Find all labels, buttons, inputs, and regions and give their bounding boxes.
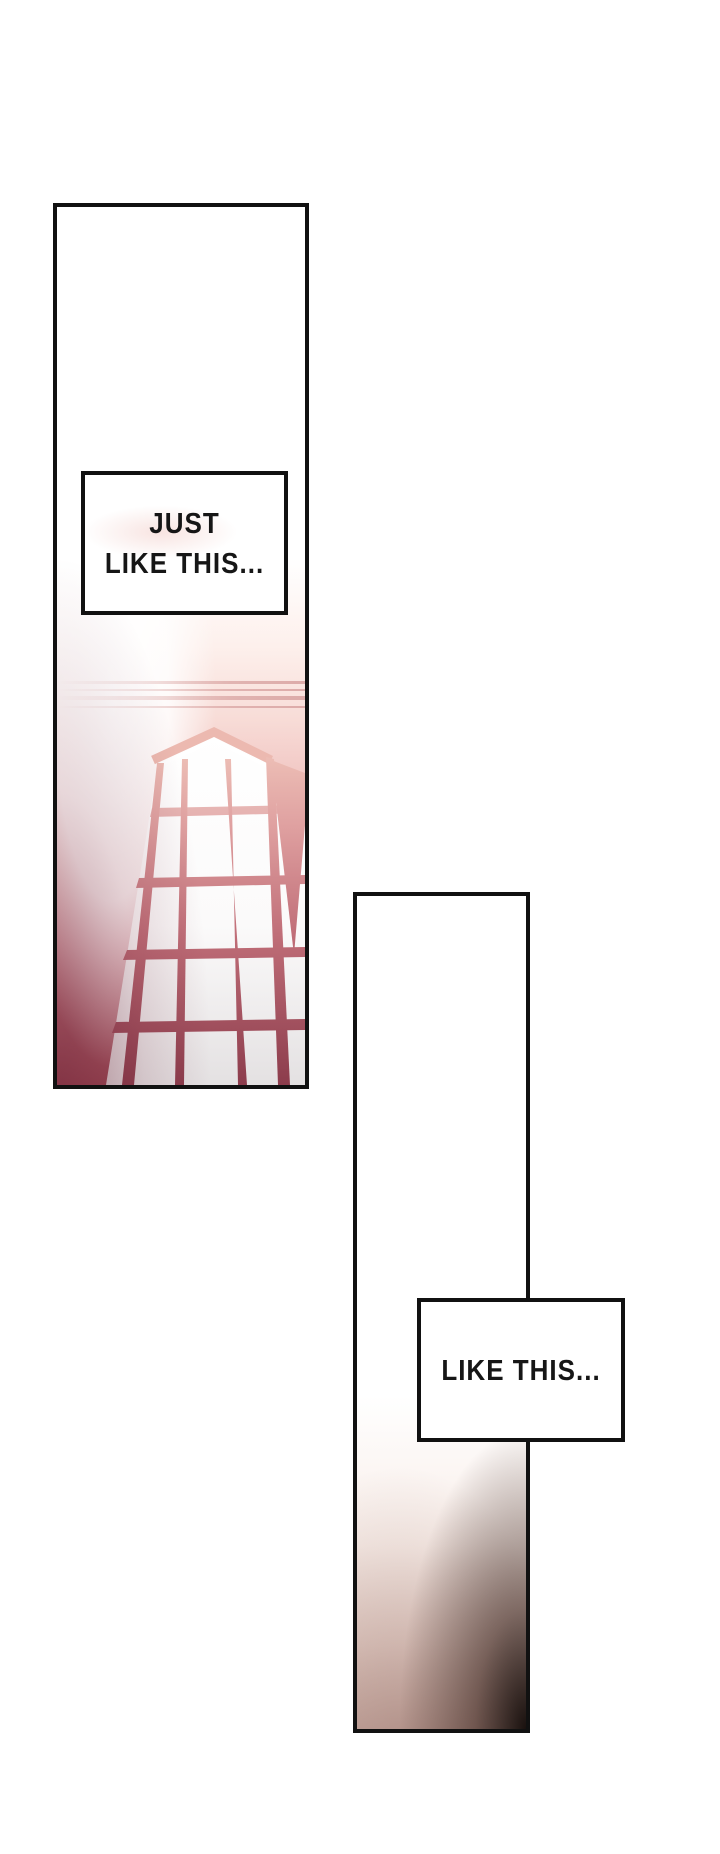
- corner-shadow: [57, 207, 305, 1085]
- comic-page[interactable]: JUST LIKE THIS... LIKE THIS...: [0, 0, 720, 1854]
- speech-box-1: JUST LIKE THIS...: [81, 471, 288, 615]
- window-artwork: [57, 207, 305, 1085]
- speech-line: LIKE THIS...: [105, 543, 264, 583]
- speech-text-1: JUST LIKE THIS...: [105, 503, 264, 584]
- speech-line: JUST: [105, 503, 264, 543]
- panel-first: JUST LIKE THIS...: [53, 203, 309, 1089]
- speech-line: LIKE THIS...: [441, 1350, 600, 1390]
- speech-box-2: LIKE THIS...: [417, 1298, 625, 1442]
- speech-text-2: LIKE THIS...: [441, 1350, 600, 1390]
